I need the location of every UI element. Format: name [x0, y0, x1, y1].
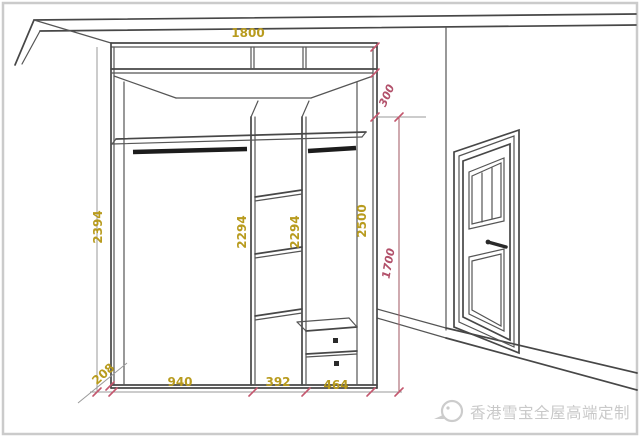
door-upper-panel-inner [472, 163, 501, 224]
dim-overall-height: 2500 [355, 204, 369, 237]
baseboard-line-2 [377, 318, 446, 338]
dim-left-height: 2394 [91, 210, 105, 243]
middle-shelf-3 [255, 309, 302, 316]
door-upper-panel-outer [469, 158, 504, 229]
drawer-handle-2 [334, 361, 339, 366]
door [454, 130, 519, 353]
door-handle-knob [486, 240, 491, 245]
dim-top-width: 1800 [231, 26, 264, 40]
dim-right-column-width: 464 [323, 378, 348, 392]
interior-ceiling-left-diag [114, 76, 176, 98]
middle-shelf-1 [255, 190, 302, 197]
cornice-bottom-line [40, 25, 636, 31]
dim-left-column-height: 2294 [235, 215, 249, 248]
baseboard-line-1 [377, 309, 446, 328]
dim-middle-column-height: 2294 [288, 215, 302, 248]
cornice-left-inner-diagonal [22, 31, 40, 64]
door-lower-panel-inner [472, 254, 501, 326]
door-lower-panel-outer [469, 249, 504, 331]
dimension-lines [78, 43, 426, 403]
floor-line-2 [446, 338, 637, 390]
drawer-divider-1 [306, 351, 357, 354]
dim-middle-column-width: 392 [265, 375, 290, 389]
dim-top-section-height: 300 [376, 82, 397, 109]
hanging-rod-right [308, 148, 356, 151]
room-lines [15, 14, 637, 390]
cornice-top-line [34, 14, 636, 20]
drawer-unit-top-front [306, 327, 357, 331]
hanging-rod-left [133, 149, 247, 152]
drawer-handle-1 [333, 338, 338, 343]
interior-ceiling-right-diag [311, 76, 373, 98]
dimension-labels: 1800 2394 2294 2294 300 2500 1700 208 94… [89, 26, 397, 392]
watermark-text: 香港雪宝全屋高端定制 [470, 404, 630, 422]
dim-left-column-width: 940 [167, 375, 192, 389]
door-handle [488, 242, 506, 247]
watermark: 香港雪宝全屋高端定制 [434, 401, 630, 422]
dim-hanging-zone-height: 1700 [379, 247, 397, 280]
sketch-svg: 1800 2394 2294 2294 300 2500 1700 208 94… [0, 0, 640, 437]
watermark-logo-icon [434, 401, 462, 421]
wardrobe-dimension-sketch: 1800 2394 2294 2294 300 2500 1700 208 94… [0, 0, 640, 437]
